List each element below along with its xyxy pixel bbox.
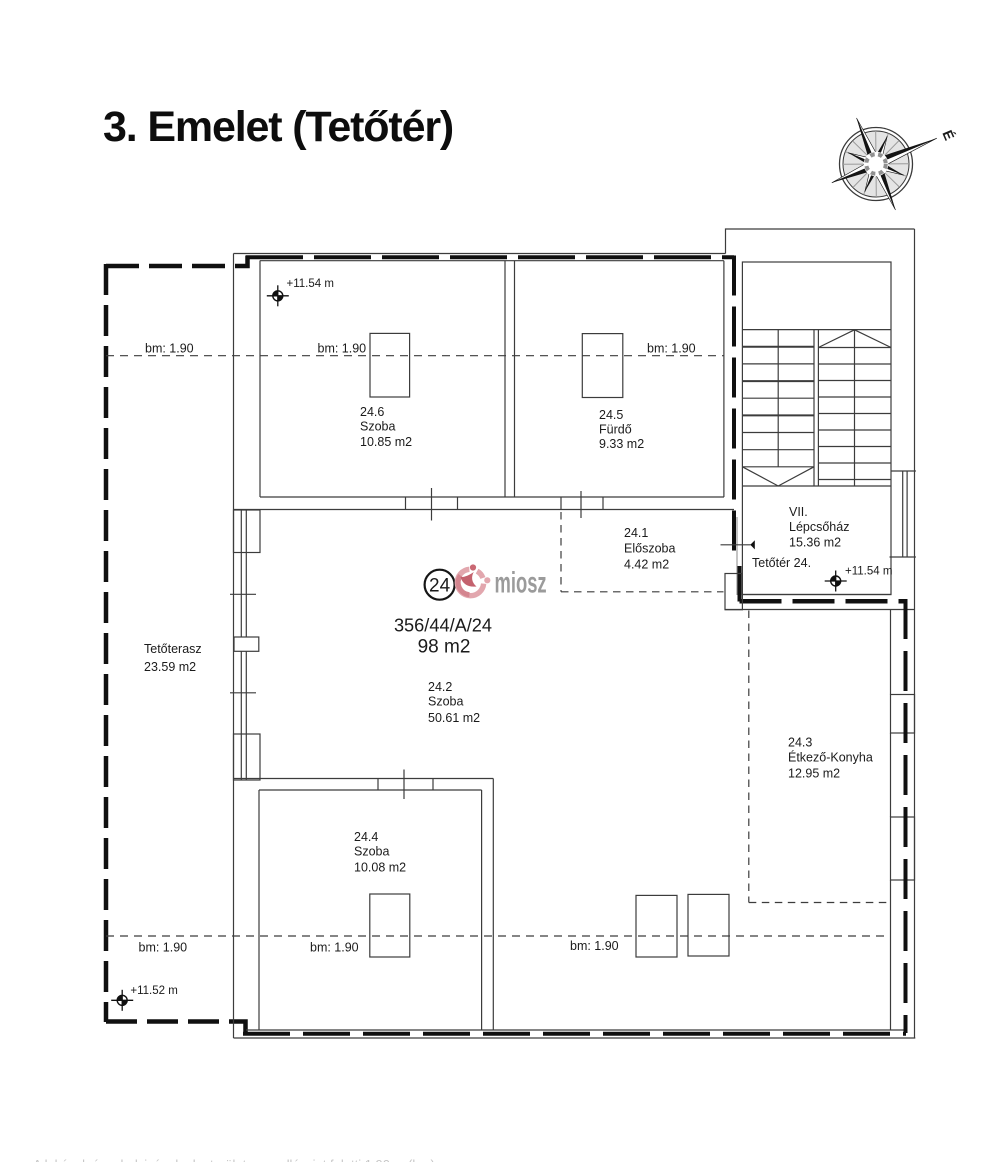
svg-text:Szoba: Szoba	[354, 845, 389, 859]
svg-text:Tetőtér 24.: Tetőtér 24.	[752, 556, 811, 570]
svg-text:+11.52 m: +11.52 m	[130, 985, 177, 997]
svg-text:bm: 1.90: bm: 1.90	[310, 941, 359, 955]
svg-text:bm: 1.90: bm: 1.90	[318, 342, 367, 356]
svg-text:24.3: 24.3	[788, 736, 812, 750]
svg-text:bm: 1.90: bm: 1.90	[139, 941, 188, 955]
svg-text:24: 24	[429, 576, 451, 597]
svg-text:Szoba: Szoba	[360, 420, 395, 434]
svg-text:356/44/A/24: 356/44/A/24	[394, 616, 492, 636]
svg-text:Fürdő: Fürdő	[599, 423, 632, 437]
svg-text:24.6: 24.6	[360, 405, 384, 419]
svg-text:9.33 m2: 9.33 m2	[599, 437, 644, 451]
svg-text:10.85 m2: 10.85 m2	[360, 435, 412, 449]
svg-text:Szoba: Szoba	[428, 695, 463, 709]
svg-text:Étkező-Konyha: Étkező-Konyha	[788, 750, 873, 765]
svg-text:50.61 m2: 50.61 m2	[428, 711, 480, 725]
svg-text:VII.: VII.	[789, 505, 808, 519]
svg-text:24.1: 24.1	[624, 526, 648, 540]
svg-text:4.42 m2: 4.42 m2	[624, 558, 669, 572]
svg-text:bm: 1.90: bm: 1.90	[570, 939, 619, 953]
svg-text:24.4: 24.4	[354, 830, 378, 844]
svg-text:12.95 m2: 12.95 m2	[788, 767, 840, 781]
svg-text:10.08 m2: 10.08 m2	[354, 861, 406, 875]
svg-text:98 m2: 98 m2	[418, 637, 471, 658]
svg-text:Tetőterasz: Tetőterasz	[144, 642, 202, 656]
svg-text:bm: 1.90: bm: 1.90	[647, 342, 696, 356]
svg-text:15.36 m2: 15.36 m2	[789, 536, 841, 550]
svg-text:24.2: 24.2	[428, 680, 452, 694]
svg-text:A lakások és a helyiségek alap: A lakások és a helyiségek alapterülete a…	[33, 1157, 435, 1162]
svg-text:Előszoba: Előszoba	[624, 542, 675, 556]
svg-text:+11.54 m: +11.54 m	[287, 278, 334, 290]
svg-text:24.5: 24.5	[599, 408, 623, 422]
svg-text:3. Emelet (Tetőtér): 3. Emelet (Tetőtér)	[103, 103, 453, 151]
svg-text:+11.54 m: +11.54 m	[845, 566, 892, 578]
svg-text:miosz: miosz	[495, 566, 547, 600]
svg-text:23.59 m2: 23.59 m2	[144, 660, 196, 674]
svg-text:Lépcsőház: Lépcsőház	[789, 520, 849, 534]
svg-text:bm: 1.90: bm: 1.90	[145, 342, 194, 356]
